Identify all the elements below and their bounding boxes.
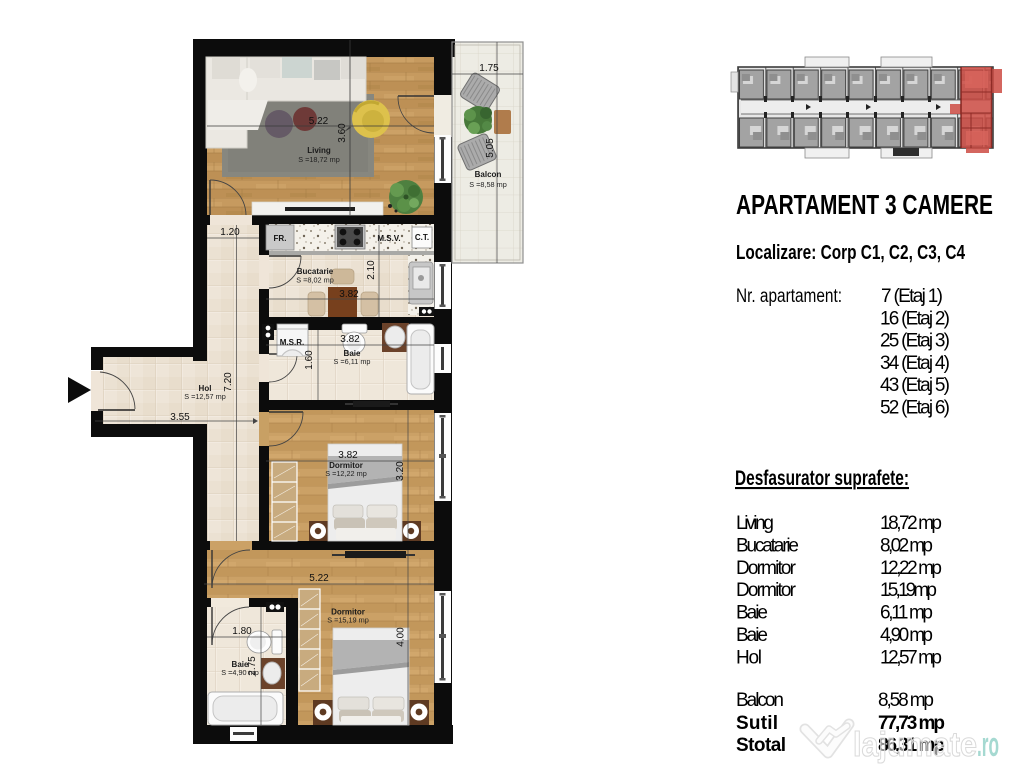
svg-text:M.S.V.: M.S.V.: [377, 234, 400, 243]
svg-text:3.82: 3.82: [340, 334, 360, 345]
svg-text:7.20: 7.20: [223, 372, 234, 392]
svg-text:Baie: Baie: [736, 603, 768, 624]
svg-text:S =6,11 mp: S =6,11 mp: [334, 357, 371, 366]
svg-text:Balcon: Balcon: [475, 170, 502, 179]
svg-text:C.T.: C.T.: [415, 233, 429, 242]
svg-text:.ro: .ro: [977, 726, 999, 764]
svg-text:Baie: Baie: [736, 625, 768, 646]
svg-text:1.75: 1.75: [479, 63, 499, 74]
svg-text:8,58 mp: 8,58 mp: [878, 690, 934, 711]
svg-text:12,57 mp: 12,57 mp: [880, 647, 942, 668]
svg-text:APARTAMENT 3 CAMERE: APARTAMENT 3 CAMERE: [736, 189, 993, 220]
svg-text:3.82: 3.82: [338, 450, 358, 461]
svg-text:S =8,58 mp: S =8,58 mp: [469, 180, 507, 189]
svg-text:S =12,22 mp: S =12,22 mp: [325, 469, 367, 478]
svg-text:S =8,02 mp: S =8,02 mp: [296, 276, 334, 285]
svg-text:43 (Etaj 5): 43 (Etaj 5): [880, 375, 950, 396]
svg-text:3.82: 3.82: [339, 289, 359, 300]
svg-text:S =4,90 mp: S =4,90 mp: [221, 668, 259, 677]
svg-text:15,19mp: 15,19mp: [880, 580, 937, 601]
svg-text:Balcon: Balcon: [736, 690, 784, 711]
svg-text:Dormitor: Dormitor: [736, 558, 797, 579]
svg-text:Sutil: Sutil: [736, 713, 778, 734]
svg-text:1.20: 1.20: [220, 227, 240, 238]
svg-text:16 (Etaj 2): 16 (Etaj 2): [880, 308, 950, 329]
svg-text:7 (Etaj 1): 7 (Etaj 1): [881, 286, 943, 307]
svg-text:12,22 mp: 12,22 mp: [880, 558, 942, 579]
svg-text:S =15,19 mp: S =15,19 mp: [327, 616, 369, 625]
svg-text:5.05: 5.05: [485, 138, 496, 158]
svg-text:52 (Etaj 6): 52 (Etaj 6): [880, 398, 950, 419]
svg-text:S =18,72 mp: S =18,72 mp: [298, 155, 340, 164]
svg-text:6,11 mp: 6,11 mp: [880, 603, 933, 624]
svg-text:Dormitor: Dormitor: [736, 580, 797, 601]
svg-text:M.S.R.: M.S.R.: [280, 338, 304, 347]
svg-text:5.22: 5.22: [309, 573, 329, 584]
svg-text:3.20: 3.20: [395, 461, 406, 481]
svg-text:S =12,57 mp: S =12,57 mp: [184, 392, 226, 401]
svg-text:4.00: 4.00: [396, 627, 407, 647]
svg-text:Living: Living: [307, 146, 331, 155]
svg-text:Stotal: Stotal: [736, 735, 786, 756]
svg-text:2.10: 2.10: [366, 260, 377, 280]
svg-text:1.80: 1.80: [232, 626, 252, 637]
svg-text:Desfasurator suprafete:: Desfasurator suprafete:: [735, 467, 909, 490]
svg-text:Living: Living: [736, 513, 774, 534]
svg-text:3.55: 3.55: [170, 412, 190, 423]
svg-text:3.60: 3.60: [337, 123, 348, 143]
svg-text:Hol: Hol: [736, 647, 762, 668]
svg-text:25 (Etaj 3): 25 (Etaj 3): [880, 331, 950, 352]
svg-text:lajumate: lajumate: [853, 726, 977, 764]
svg-text:34 (Etaj 4): 34 (Etaj 4): [880, 353, 950, 374]
svg-text:4,90 mp: 4,90 mp: [880, 625, 933, 646]
svg-text:Localizare: Corp C1, C2, C3, C: Localizare: Corp C1, C2, C3, C4: [736, 242, 966, 264]
svg-text:Bucatarie: Bucatarie: [736, 535, 799, 556]
svg-text:Nr. apartament:: Nr. apartament:: [736, 286, 842, 307]
svg-text:8,02 mp: 8,02 mp: [880, 535, 933, 556]
svg-text:5.22: 5.22: [309, 116, 329, 127]
svg-text:FR.: FR.: [274, 234, 287, 243]
svg-text:1.60: 1.60: [304, 350, 315, 370]
svg-text:18,72 mp: 18,72 mp: [880, 513, 942, 534]
